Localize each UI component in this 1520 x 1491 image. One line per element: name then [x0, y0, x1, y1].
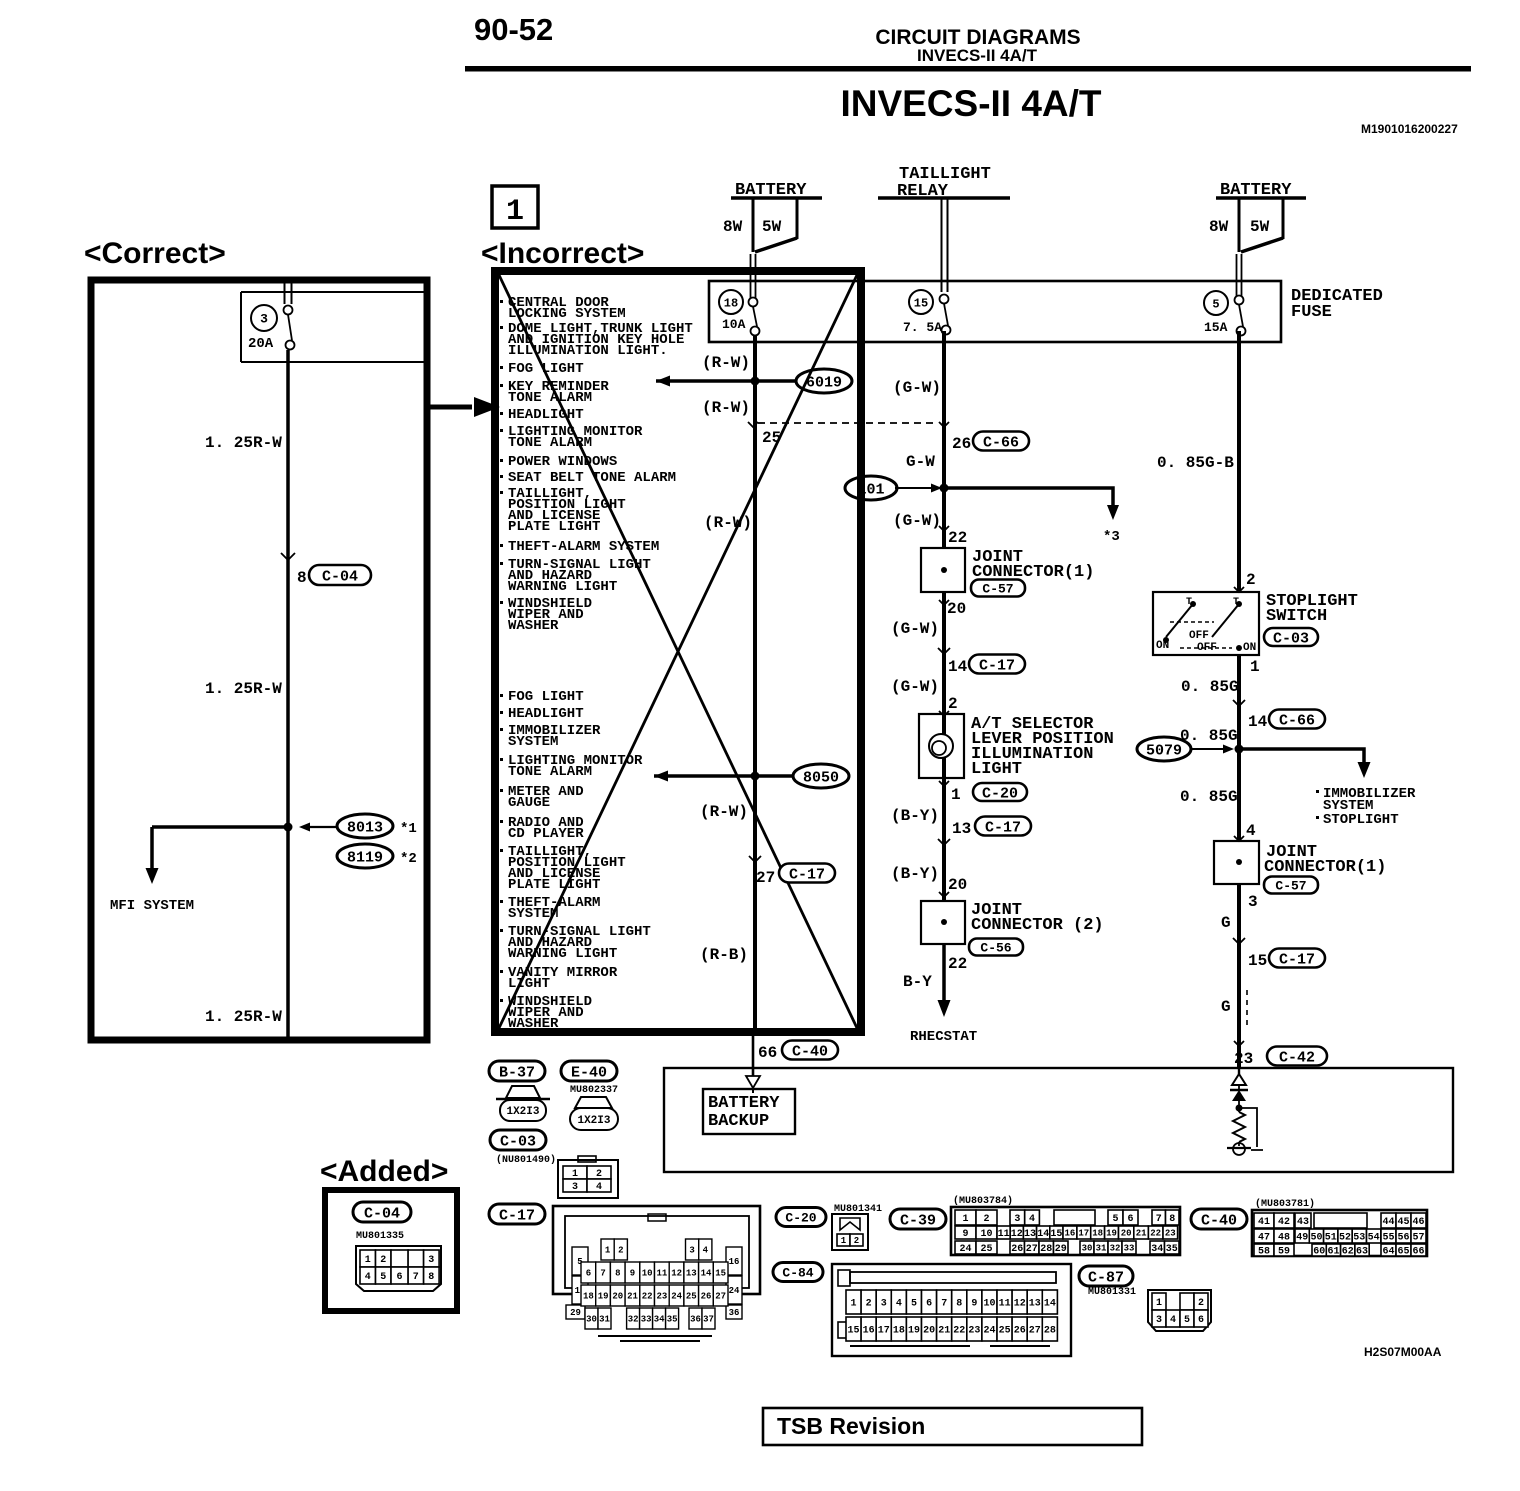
svg-text:G: G: [1221, 998, 1231, 1016]
svg-text:7: 7: [413, 1272, 419, 1283]
svg-text:56: 56: [1397, 1233, 1409, 1244]
svg-text:11: 11: [656, 1269, 667, 1279]
svg-text:2: 2: [948, 695, 958, 713]
svg-text:8W: 8W: [723, 218, 743, 236]
svg-text:0. 85G: 0. 85G: [1180, 788, 1238, 806]
svg-text:1X2I3: 1X2I3: [506, 1106, 539, 1118]
svg-text:3: 3: [1014, 1214, 1020, 1225]
svg-text:49: 49: [1296, 1233, 1308, 1244]
svg-text:C-17: C-17: [789, 866, 825, 883]
svg-text:22: 22: [948, 955, 967, 973]
svg-text:C-20: C-20: [982, 785, 1018, 802]
svg-text:27: 27: [715, 1292, 726, 1302]
svg-text:SEAT BELT TONE ALARM: SEAT BELT TONE ALARM: [508, 470, 676, 486]
svg-text:46: 46: [1412, 1217, 1424, 1228]
svg-text:TSB Revision: TSB Revision: [777, 1413, 925, 1439]
svg-text:36: 36: [729, 1308, 740, 1318]
svg-text:POWER WINDOWS: POWER WINDOWS: [508, 454, 617, 470]
svg-text:50: 50: [1310, 1233, 1322, 1244]
svg-text:6: 6: [1127, 1214, 1133, 1225]
svg-text:19: 19: [908, 1326, 920, 1337]
svg-text:45: 45: [1397, 1217, 1409, 1228]
svg-text:54: 54: [1368, 1233, 1380, 1244]
svg-text:(R-W): (R-W): [700, 803, 748, 821]
svg-text:20A: 20A: [248, 336, 274, 352]
svg-text:10: 10: [983, 1299, 995, 1310]
svg-text:ON: ON: [1243, 642, 1256, 654]
svg-text:31: 31: [599, 1315, 610, 1325]
svg-text:12: 12: [1014, 1299, 1026, 1310]
svg-text:MU801331: MU801331: [1088, 1287, 1136, 1298]
svg-text:4: 4: [1170, 1315, 1176, 1326]
svg-text:21: 21: [938, 1326, 950, 1337]
svg-text:MFI SYSTEM: MFI SYSTEM: [110, 898, 194, 914]
svg-text:13: 13: [1024, 1229, 1036, 1240]
svg-text:2: 2: [866, 1299, 872, 1310]
svg-text:7: 7: [600, 1269, 605, 1279]
svg-text:C-04: C-04: [364, 1205, 400, 1222]
svg-text:C-42: C-42: [1279, 1049, 1315, 1066]
svg-text:1. 25R-W: 1. 25R-W: [205, 434, 282, 452]
svg-text:25: 25: [762, 429, 781, 447]
svg-text:28: 28: [1044, 1326, 1056, 1337]
svg-text:35: 35: [667, 1315, 678, 1325]
svg-text:8: 8: [615, 1269, 620, 1279]
svg-text:C-57: C-57: [1275, 879, 1306, 894]
svg-text:18: 18: [724, 296, 738, 310]
svg-text:5: 5: [380, 1272, 386, 1283]
svg-text:31: 31: [1096, 1244, 1107, 1254]
svg-text:(G-W): (G-W): [891, 620, 939, 638]
svg-text:8W: 8W: [1209, 218, 1229, 236]
svg-text:22: 22: [1150, 1229, 1161, 1239]
svg-text:3: 3: [572, 1182, 578, 1193]
svg-text:T: T: [1233, 597, 1239, 608]
svg-text:CONNECTOR (2): CONNECTOR (2): [971, 916, 1104, 935]
svg-text:22: 22: [642, 1292, 653, 1302]
svg-text:5: 5: [1112, 1214, 1118, 1225]
svg-text:11: 11: [998, 1229, 1010, 1240]
svg-text:SYSTEM: SYSTEM: [508, 734, 558, 750]
svg-text:FOG LIGHT: FOG LIGHT: [508, 689, 584, 705]
svg-text:MU802337: MU802337: [570, 1085, 618, 1096]
svg-text:LIGHT: LIGHT: [508, 976, 550, 992]
svg-text:61: 61: [1327, 1247, 1339, 1258]
svg-text:2: 2: [1198, 1298, 1204, 1309]
svg-text:OFF: OFF: [1189, 630, 1209, 642]
svg-text:6: 6: [926, 1299, 932, 1310]
svg-text:101: 101: [857, 481, 884, 498]
svg-text:C-03: C-03: [500, 1133, 536, 1150]
svg-text:24: 24: [729, 1286, 740, 1296]
svg-text:OFF: OFF: [1197, 642, 1217, 654]
svg-text:21: 21: [1136, 1229, 1147, 1239]
svg-text:C-87: C-87: [1088, 1269, 1124, 1286]
svg-text:<Incorrect>: <Incorrect>: [481, 237, 644, 270]
svg-text:RHECSTAT: RHECSTAT: [910, 1029, 977, 1045]
svg-text:(G-W): (G-W): [891, 678, 939, 696]
svg-text:65: 65: [1397, 1247, 1409, 1258]
svg-text:G-W: G-W: [906, 453, 935, 471]
svg-text:4: 4: [1246, 822, 1256, 840]
svg-text:3: 3: [260, 312, 268, 327]
svg-text:24: 24: [671, 1292, 682, 1302]
svg-text:20: 20: [612, 1292, 623, 1302]
svg-text:7: 7: [1156, 1214, 1162, 1225]
svg-text:62: 62: [1342, 1247, 1354, 1258]
svg-text:25: 25: [980, 1244, 992, 1255]
svg-text:19: 19: [598, 1292, 609, 1302]
svg-text:20: 20: [948, 876, 967, 894]
svg-text:HEADLIGHT: HEADLIGHT: [508, 407, 584, 423]
svg-text:66: 66: [758, 1044, 777, 1062]
svg-text:BACKUP: BACKUP: [708, 1112, 769, 1131]
svg-text:C-17: C-17: [1279, 951, 1315, 968]
svg-text:<Added>: <Added>: [320, 1155, 448, 1188]
svg-text:25: 25: [686, 1292, 697, 1302]
svg-text:(R-W): (R-W): [702, 399, 750, 417]
svg-text:29: 29: [570, 1308, 581, 1318]
svg-text:C-17: C-17: [979, 657, 1015, 674]
svg-text:(G-W): (G-W): [893, 512, 941, 530]
svg-text:C-66: C-66: [983, 434, 1019, 451]
svg-text:TONE ALARM: TONE ALARM: [508, 764, 592, 780]
svg-text:2: 2: [983, 1214, 989, 1225]
svg-text:13: 13: [952, 820, 971, 838]
svg-text:23: 23: [656, 1292, 667, 1302]
svg-text:CONNECTOR(1): CONNECTOR(1): [1264, 858, 1386, 877]
svg-text:HEADLIGHT: HEADLIGHT: [508, 706, 584, 722]
svg-text:14: 14: [1248, 713, 1268, 731]
svg-text:41: 41: [1258, 1217, 1270, 1228]
svg-text:18: 18: [1092, 1229, 1103, 1239]
svg-text:1: 1: [1250, 658, 1260, 676]
svg-text:43: 43: [1297, 1217, 1309, 1228]
svg-text:13: 13: [1029, 1299, 1041, 1310]
svg-text:6: 6: [1198, 1315, 1204, 1326]
svg-text:C-57: C-57: [982, 582, 1013, 597]
svg-text:6019: 6019: [806, 374, 842, 391]
svg-text:8: 8: [956, 1299, 962, 1310]
svg-text:44: 44: [1382, 1217, 1394, 1228]
svg-text:C-40: C-40: [792, 1043, 828, 1060]
svg-text:7. 5A: 7. 5A: [903, 320, 942, 335]
svg-text:SWITCH: SWITCH: [1266, 607, 1327, 626]
svg-text:STOPLIGHT: STOPLIGHT: [1323, 812, 1399, 828]
svg-text:35: 35: [1166, 1244, 1178, 1255]
svg-text:1: 1: [365, 1255, 371, 1266]
svg-text:2: 2: [618, 1246, 623, 1256]
svg-text:ILLUMINATION LIGHT.: ILLUMINATION LIGHT.: [508, 343, 668, 359]
svg-text:33: 33: [641, 1315, 652, 1325]
svg-text:B-37: B-37: [499, 1064, 535, 1081]
svg-text:57: 57: [1412, 1233, 1424, 1244]
svg-text:4: 4: [1029, 1214, 1035, 1225]
svg-text:1: 1: [506, 195, 524, 229]
svg-text:55: 55: [1382, 1233, 1394, 1244]
svg-text:26: 26: [952, 435, 971, 453]
svg-text:(NU801490): (NU801490): [496, 1154, 556, 1166]
svg-text:64: 64: [1382, 1247, 1394, 1258]
svg-text:(MU803781): (MU803781): [1255, 1198, 1315, 1210]
svg-text:7: 7: [941, 1299, 947, 1310]
svg-text:51: 51: [1325, 1233, 1337, 1244]
svg-text:58: 58: [1258, 1247, 1270, 1258]
svg-text:LIGHT: LIGHT: [971, 760, 1022, 779]
svg-text:WASHER: WASHER: [508, 1016, 559, 1032]
svg-text:E-40: E-40: [571, 1064, 607, 1081]
svg-text:C-40: C-40: [1201, 1212, 1237, 1229]
svg-text:15: 15: [1248, 952, 1267, 970]
svg-text:SYSTEM: SYSTEM: [508, 906, 558, 922]
svg-text:29: 29: [1055, 1244, 1067, 1255]
svg-text:16: 16: [1064, 1229, 1075, 1239]
svg-text:10: 10: [642, 1269, 653, 1279]
svg-text:1: 1: [962, 1214, 968, 1225]
svg-text:C-84: C-84: [782, 1266, 813, 1281]
svg-text:INVECS-II 4A/T: INVECS-II 4A/T: [840, 83, 1101, 124]
svg-text:24: 24: [959, 1244, 971, 1255]
svg-text:3: 3: [689, 1246, 694, 1256]
svg-text:4: 4: [596, 1182, 602, 1193]
svg-text:15: 15: [715, 1269, 726, 1279]
svg-text:17: 17: [1078, 1229, 1089, 1239]
svg-text:9: 9: [630, 1269, 635, 1279]
svg-text:0. 85G: 0. 85G: [1181, 678, 1239, 696]
svg-text:ON: ON: [1156, 640, 1169, 652]
svg-text:15: 15: [914, 296, 928, 310]
svg-text:12: 12: [1011, 1229, 1023, 1240]
svg-text:G: G: [1221, 914, 1231, 932]
svg-text:1. 25R-W: 1. 25R-W: [205, 680, 282, 698]
svg-text:17: 17: [878, 1326, 890, 1337]
svg-text:18: 18: [583, 1292, 594, 1302]
svg-text:(G-W): (G-W): [893, 379, 941, 397]
svg-text:14: 14: [1037, 1229, 1049, 1240]
svg-text:5W: 5W: [1250, 218, 1270, 236]
svg-text:12: 12: [671, 1269, 682, 1279]
svg-text:PLATE LIGHT: PLATE LIGHT: [508, 877, 600, 893]
svg-text:5: 5: [1212, 297, 1219, 311]
svg-text:32: 32: [628, 1315, 639, 1325]
svg-text:20: 20: [1121, 1229, 1132, 1239]
svg-text:WARNING LIGHT: WARNING LIGHT: [508, 946, 617, 962]
svg-text:<Correct>: <Correct>: [84, 237, 226, 270]
svg-text:63: 63: [1356, 1247, 1368, 1258]
svg-text:33: 33: [1124, 1244, 1135, 1254]
svg-text:32: 32: [1110, 1244, 1121, 1254]
svg-text:FOG LIGHT: FOG LIGHT: [508, 361, 584, 377]
svg-text:C-17: C-17: [499, 1207, 535, 1224]
svg-text:10: 10: [980, 1229, 992, 1240]
svg-text:11: 11: [999, 1299, 1011, 1310]
svg-text:30: 30: [1082, 1244, 1093, 1254]
svg-text:36: 36: [690, 1315, 701, 1325]
svg-text:WASHER: WASHER: [508, 618, 559, 634]
svg-text:22: 22: [953, 1326, 965, 1337]
svg-text:5: 5: [911, 1299, 917, 1310]
svg-text:8: 8: [428, 1272, 434, 1283]
svg-text:24: 24: [983, 1326, 995, 1337]
svg-text:52: 52: [1339, 1233, 1351, 1244]
svg-text:14: 14: [948, 658, 968, 676]
svg-text:15: 15: [847, 1326, 859, 1337]
svg-text:8: 8: [1169, 1214, 1175, 1225]
svg-text:66: 66: [1412, 1247, 1424, 1258]
svg-text:8119: 8119: [347, 849, 383, 866]
svg-text:LOCKING SYSTEM: LOCKING SYSTEM: [508, 306, 626, 322]
svg-text:19: 19: [1106, 1229, 1117, 1239]
svg-text:2: 2: [854, 1236, 859, 1246]
svg-text:8: 8: [297, 569, 307, 587]
svg-text:TONE ALARM: TONE ALARM: [508, 390, 592, 406]
svg-text:INVECS-II 4A/T: INVECS-II 4A/T: [917, 46, 1038, 65]
svg-text:42: 42: [1278, 1217, 1290, 1228]
svg-text:(B-Y): (B-Y): [891, 865, 939, 883]
svg-text:C-20: C-20: [785, 1211, 816, 1226]
svg-text:15A: 15A: [1204, 320, 1228, 335]
svg-text:59: 59: [1278, 1247, 1290, 1258]
svg-text:15: 15: [1050, 1229, 1062, 1240]
svg-text:6: 6: [586, 1269, 591, 1279]
svg-text:2: 2: [1246, 571, 1256, 589]
svg-text:4: 4: [896, 1299, 902, 1310]
svg-text:23: 23: [1165, 1229, 1176, 1239]
svg-text:H2S07M00AA: H2S07M00AA: [1364, 1345, 1442, 1359]
svg-text:CD PLAYER: CD PLAYER: [508, 826, 584, 842]
svg-text:1: 1: [605, 1246, 611, 1256]
svg-text:27: 27: [1026, 1244, 1038, 1255]
svg-text:14: 14: [1044, 1299, 1056, 1310]
svg-text:47: 47: [1258, 1233, 1270, 1244]
svg-text:PLATE LIGHT: PLATE LIGHT: [508, 519, 600, 535]
svg-text:(R-W): (R-W): [704, 514, 752, 532]
svg-text:27: 27: [756, 869, 775, 887]
svg-text:(R-B): (R-B): [700, 946, 748, 964]
svg-text:1X2I3: 1X2I3: [577, 1115, 610, 1127]
svg-text:26: 26: [701, 1292, 712, 1302]
svg-text:0. 85G-B: 0. 85G-B: [1157, 454, 1234, 472]
svg-text:34: 34: [1151, 1244, 1163, 1255]
svg-text:14: 14: [701, 1269, 712, 1279]
svg-text:C-66: C-66: [1279, 712, 1315, 729]
svg-text:5W: 5W: [762, 218, 782, 236]
svg-text:(MU803784): (MU803784): [953, 1195, 1013, 1207]
svg-text:GAUGE: GAUGE: [508, 795, 550, 811]
svg-text:27: 27: [1029, 1326, 1041, 1337]
svg-text:22: 22: [948, 529, 967, 547]
svg-text:23: 23: [968, 1326, 980, 1337]
svg-text:20: 20: [923, 1326, 935, 1337]
svg-text:90-52: 90-52: [474, 12, 553, 47]
svg-text:C-03: C-03: [1273, 630, 1309, 647]
svg-text:3: 3: [1248, 893, 1258, 911]
svg-text:BATTERY: BATTERY: [708, 1094, 780, 1113]
svg-text:48: 48: [1278, 1233, 1290, 1244]
svg-text:21: 21: [627, 1292, 638, 1302]
svg-text:9: 9: [962, 1229, 968, 1240]
svg-text:34: 34: [654, 1315, 665, 1325]
svg-text:T: T: [1186, 597, 1192, 608]
svg-text:6: 6: [396, 1272, 402, 1283]
svg-text:10A: 10A: [722, 317, 746, 332]
svg-text:60: 60: [1313, 1247, 1325, 1258]
svg-text:16: 16: [729, 1257, 740, 1267]
svg-text:*3: *3: [1103, 529, 1120, 545]
svg-text:*2: *2: [400, 851, 417, 867]
svg-text:37: 37: [703, 1315, 714, 1325]
svg-text:THEFT-ALARM SYSTEM: THEFT-ALARM SYSTEM: [508, 539, 659, 555]
svg-text:5079: 5079: [1146, 742, 1182, 759]
svg-text:1. 25R-W: 1. 25R-W: [205, 1008, 282, 1026]
svg-text:1: 1: [841, 1236, 847, 1246]
svg-text:25: 25: [999, 1326, 1011, 1337]
svg-text:8013: 8013: [347, 819, 383, 836]
svg-text:8050: 8050: [803, 769, 839, 786]
svg-text:30: 30: [586, 1315, 597, 1325]
svg-text:B-Y: B-Y: [903, 973, 932, 991]
svg-text:23: 23: [1234, 1050, 1253, 1068]
svg-text:C-56: C-56: [980, 941, 1011, 956]
svg-text:1: 1: [951, 786, 961, 804]
svg-text:MU801335: MU801335: [356, 1231, 404, 1242]
svg-text:C-39: C-39: [900, 1212, 936, 1229]
svg-text:26: 26: [1011, 1244, 1023, 1255]
svg-text:28: 28: [1040, 1244, 1052, 1255]
svg-text:13: 13: [686, 1269, 697, 1279]
svg-text:20: 20: [947, 600, 966, 618]
svg-text:26: 26: [1014, 1326, 1026, 1337]
svg-text:M1901016200227: M1901016200227: [1361, 122, 1458, 136]
svg-text:53: 53: [1353, 1233, 1365, 1244]
svg-text:3: 3: [428, 1255, 434, 1266]
svg-text:16: 16: [863, 1326, 875, 1337]
svg-text:FUSE: FUSE: [1291, 303, 1332, 322]
svg-text:(R-W): (R-W): [702, 354, 750, 372]
svg-text:4: 4: [365, 1272, 371, 1283]
svg-text:18: 18: [893, 1326, 905, 1337]
svg-text:(B-Y): (B-Y): [891, 807, 939, 825]
svg-text:*1: *1: [400, 821, 417, 837]
svg-text:3: 3: [881, 1299, 887, 1310]
svg-text:1: 1: [1156, 1298, 1162, 1309]
svg-text:1: 1: [850, 1299, 856, 1310]
svg-text:WARNING LIGHT: WARNING LIGHT: [508, 579, 617, 595]
svg-text:5: 5: [1184, 1315, 1190, 1326]
svg-text:3: 3: [1156, 1315, 1162, 1326]
svg-text:C-17: C-17: [985, 819, 1021, 836]
svg-text:C-04: C-04: [322, 568, 358, 585]
svg-text:2: 2: [380, 1255, 386, 1266]
svg-text:4: 4: [703, 1246, 709, 1256]
svg-text:TONE ALARM: TONE ALARM: [508, 435, 592, 451]
svg-text:9: 9: [971, 1299, 977, 1310]
